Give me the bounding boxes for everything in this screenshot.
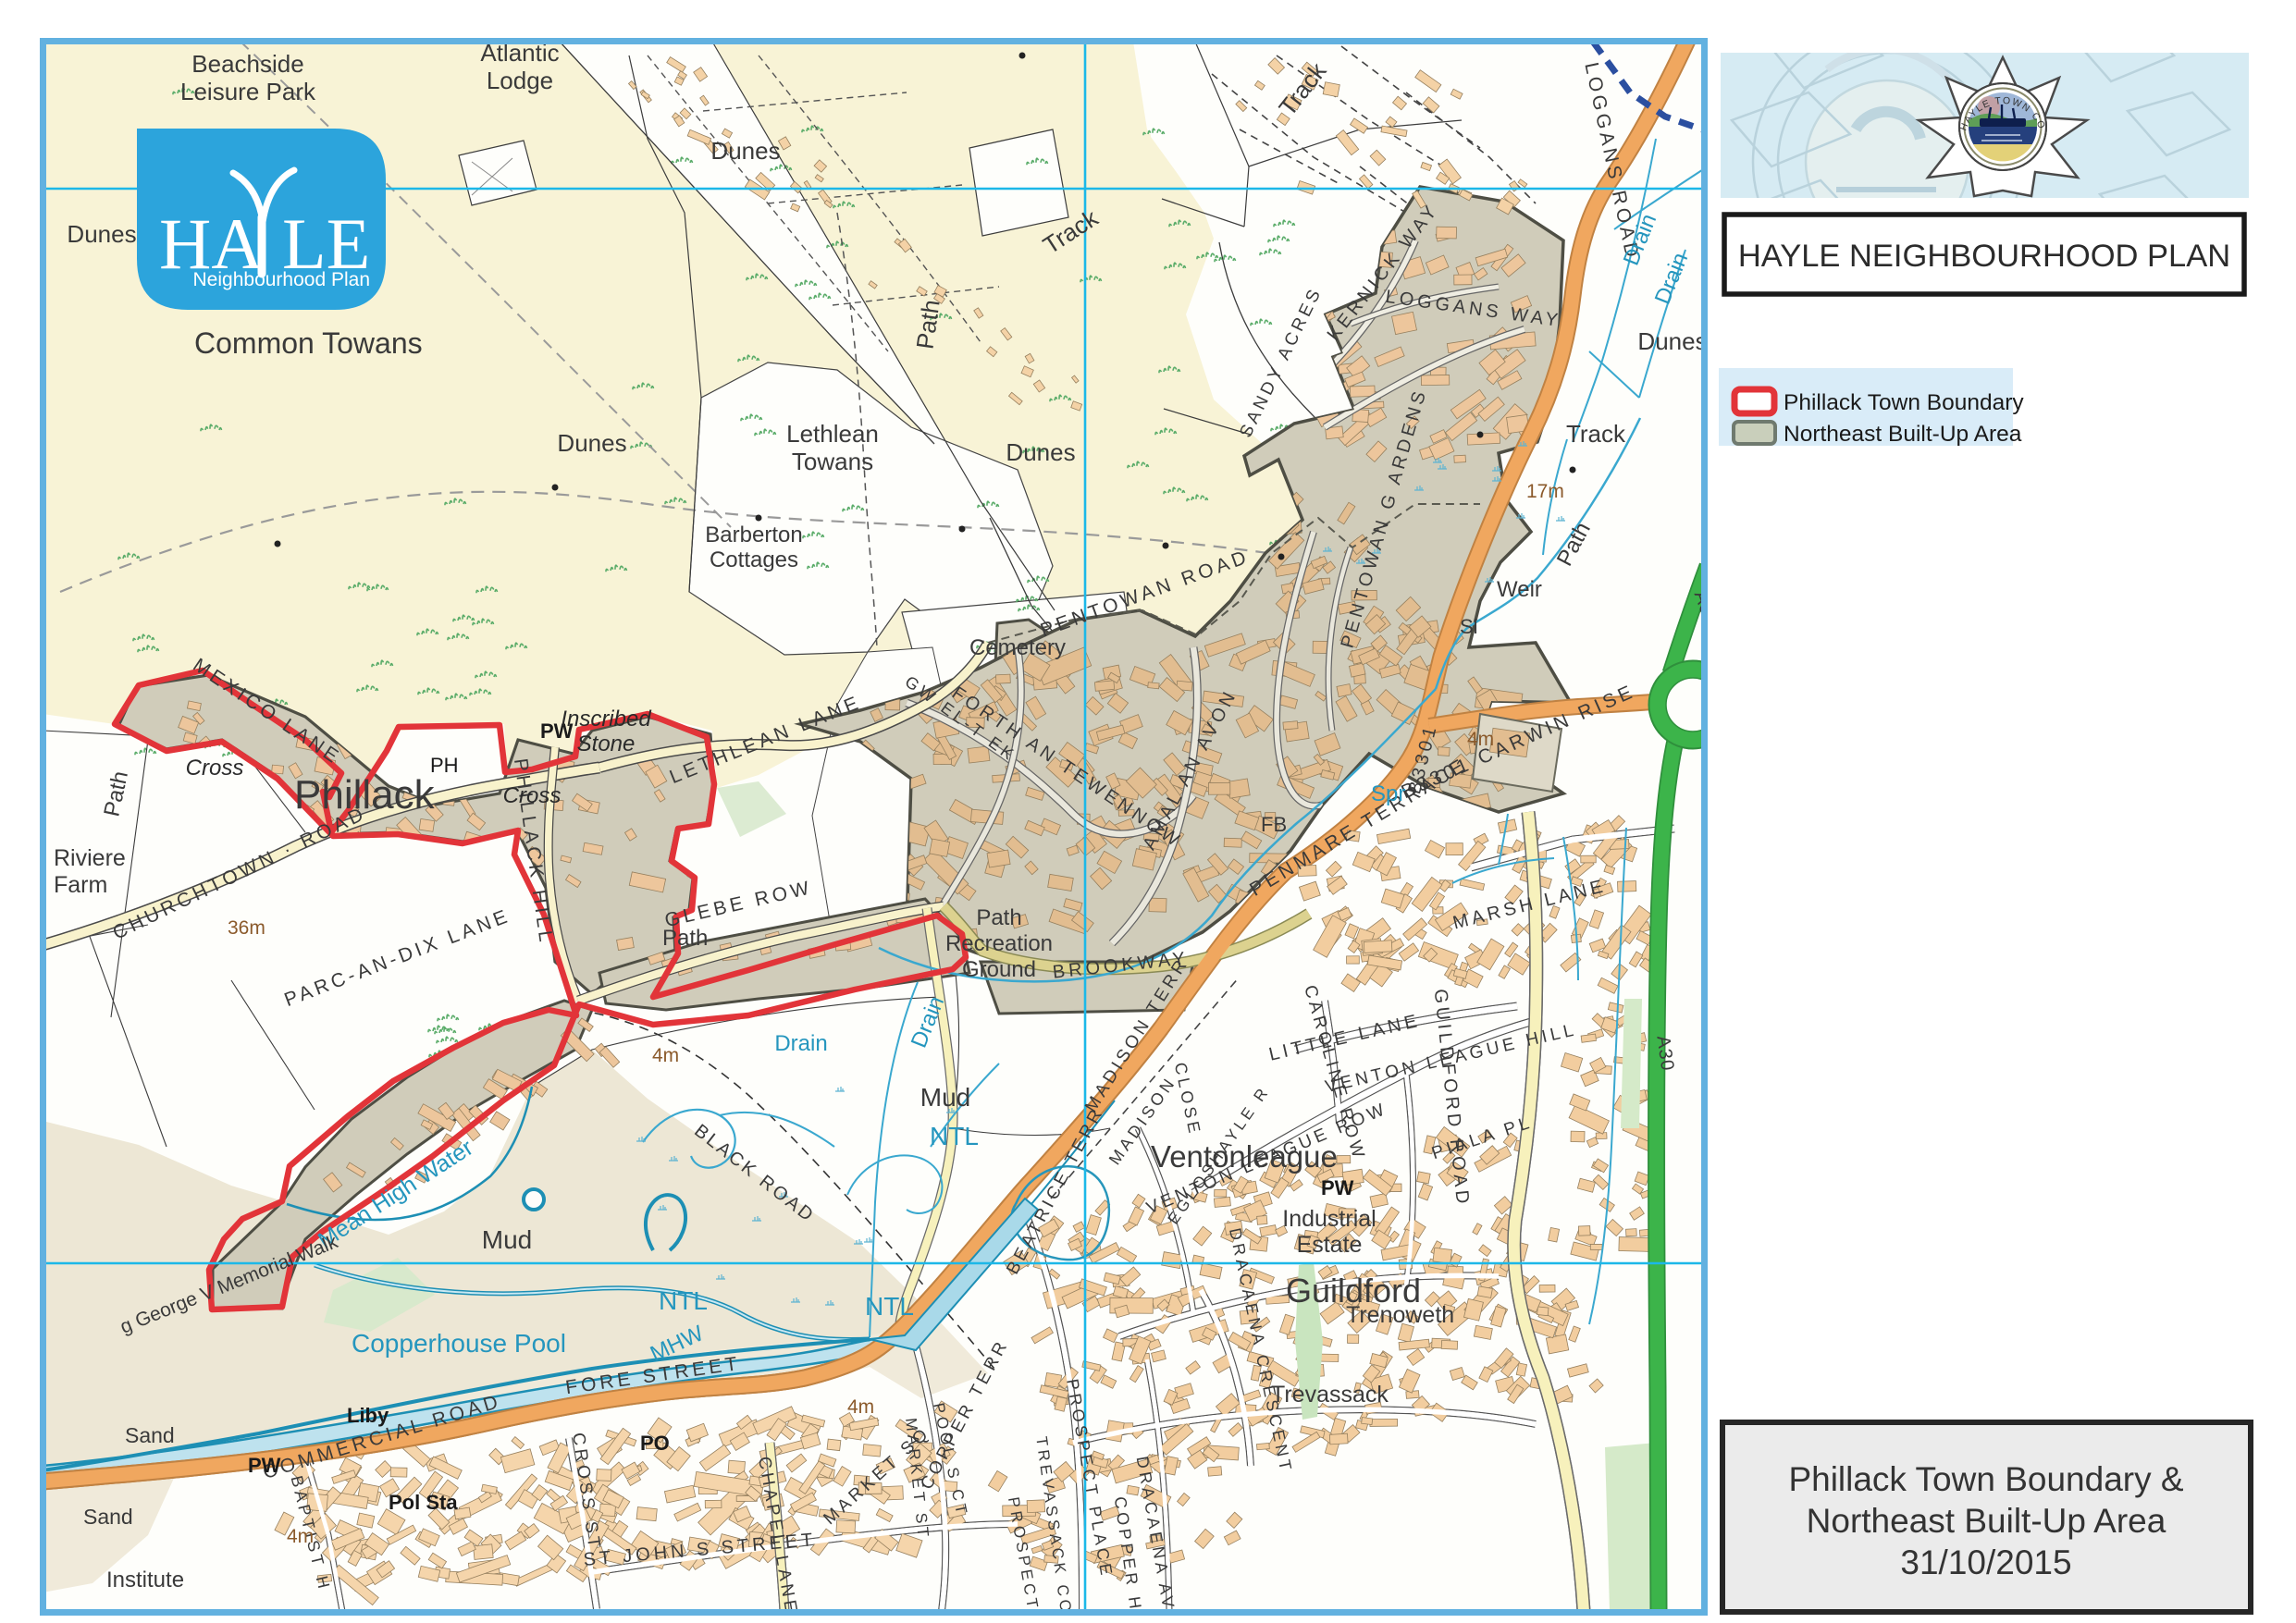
svg-text:4m: 4m [847, 1396, 874, 1418]
svg-text:Common Towans: Common Towans [194, 326, 423, 360]
svg-text:NTL: NTL [865, 1292, 914, 1321]
svg-text:36m: 36m [228, 917, 265, 939]
svg-text:Copperhouse Pool: Copperhouse Pool [352, 1329, 566, 1358]
svg-text:Barberton: Barberton [705, 523, 802, 547]
svg-text:HAYLE NEIGHBOURHOOD PLAN: HAYLE NEIGHBOURHOOD PLAN [1738, 239, 2230, 274]
svg-text:PH: PH [430, 754, 459, 777]
svg-text:NTL: NTL [659, 1286, 708, 1315]
svg-text:PW: PW [1321, 1176, 1354, 1199]
svg-text:Sand: Sand [83, 1505, 133, 1529]
svg-text:Dunes: Dunes [1637, 327, 1707, 355]
svg-text:Mud: Mud [482, 1225, 532, 1254]
svg-text:Cross: Cross [186, 756, 244, 781]
svg-text:Cemetery: Cemetery [969, 635, 1066, 660]
svg-text:4m: 4m [287, 1526, 314, 1547]
svg-text:Beachside: Beachside [191, 50, 303, 78]
svg-text:Phillack: Phillack [294, 772, 436, 818]
svg-text:Sl: Sl [1460, 615, 1478, 638]
svg-text:Dunes: Dunes [710, 137, 780, 165]
svg-text:Industrial: Industrial [1282, 1206, 1376, 1232]
svg-text:NTL: NTL [930, 1122, 979, 1150]
svg-text:Sand: Sand [125, 1423, 175, 1447]
svg-text:Estate: Estate [1297, 1232, 1363, 1258]
svg-text:Cottages: Cottages [710, 547, 798, 572]
svg-text:31/10/2015: 31/10/2015 [1900, 1543, 2071, 1581]
svg-text:Riviere: Riviere [54, 845, 126, 871]
svg-text:Weir: Weir [1497, 577, 1542, 602]
svg-text:Mud: Mud [920, 1083, 970, 1112]
svg-text:Path: Path [976, 905, 1021, 930]
svg-text:Northeast Built-Up Area: Northeast Built-Up Area [1807, 1502, 2166, 1540]
svg-text:Spr: Spr [1371, 781, 1405, 806]
svg-text:Recreation: Recreation [945, 931, 1053, 956]
svg-text:Neighbourhood Plan: Neighbourhood Plan [193, 269, 370, 290]
svg-text:4m: 4m [652, 1045, 679, 1066]
svg-text:Ground: Ground [962, 957, 1036, 982]
svg-text:PO: PO [640, 1432, 670, 1455]
svg-text:Stone: Stone [577, 732, 636, 756]
svg-text:Lodge: Lodge [487, 67, 553, 94]
svg-text:Pol Sta: Pol Sta [389, 1491, 458, 1514]
svg-text:Dunes: Dunes [557, 429, 626, 457]
svg-text:Leisure Park: Leisure Park [180, 78, 316, 105]
svg-text:FB: FB [1261, 813, 1287, 836]
svg-text:Liby: Liby [347, 1404, 389, 1427]
svg-text:Cross: Cross [503, 783, 562, 808]
svg-text:Phillack Town Boundary &: Phillack Town Boundary & [1788, 1460, 2183, 1498]
svg-text:Dunes: Dunes [67, 220, 136, 248]
svg-text:PW: PW [248, 1454, 281, 1477]
svg-text:Dunes: Dunes [1006, 438, 1075, 466]
svg-text:Lethlean: Lethlean [786, 420, 879, 448]
svg-text:4m: 4m [1467, 729, 1494, 750]
svg-text:Northeast Built-Up Area: Northeast Built-Up Area [1784, 422, 2022, 447]
svg-text:Institute: Institute [106, 1568, 184, 1592]
svg-text:Towans: Towans [792, 448, 873, 475]
svg-text:Phillack Town Boundary: Phillack Town Boundary [1784, 390, 2024, 415]
svg-text:Trevassack: Trevassack [1271, 1382, 1389, 1408]
svg-text:Trenoweth: Trenoweth [1346, 1302, 1454, 1328]
svg-text:Track: Track [1566, 420, 1626, 448]
svg-text:Drain: Drain [774, 1031, 827, 1056]
svg-text:Farm: Farm [54, 872, 107, 898]
svg-text:17m: 17m [1526, 481, 1564, 502]
svg-text:Inscribed: Inscribed [561, 707, 651, 732]
